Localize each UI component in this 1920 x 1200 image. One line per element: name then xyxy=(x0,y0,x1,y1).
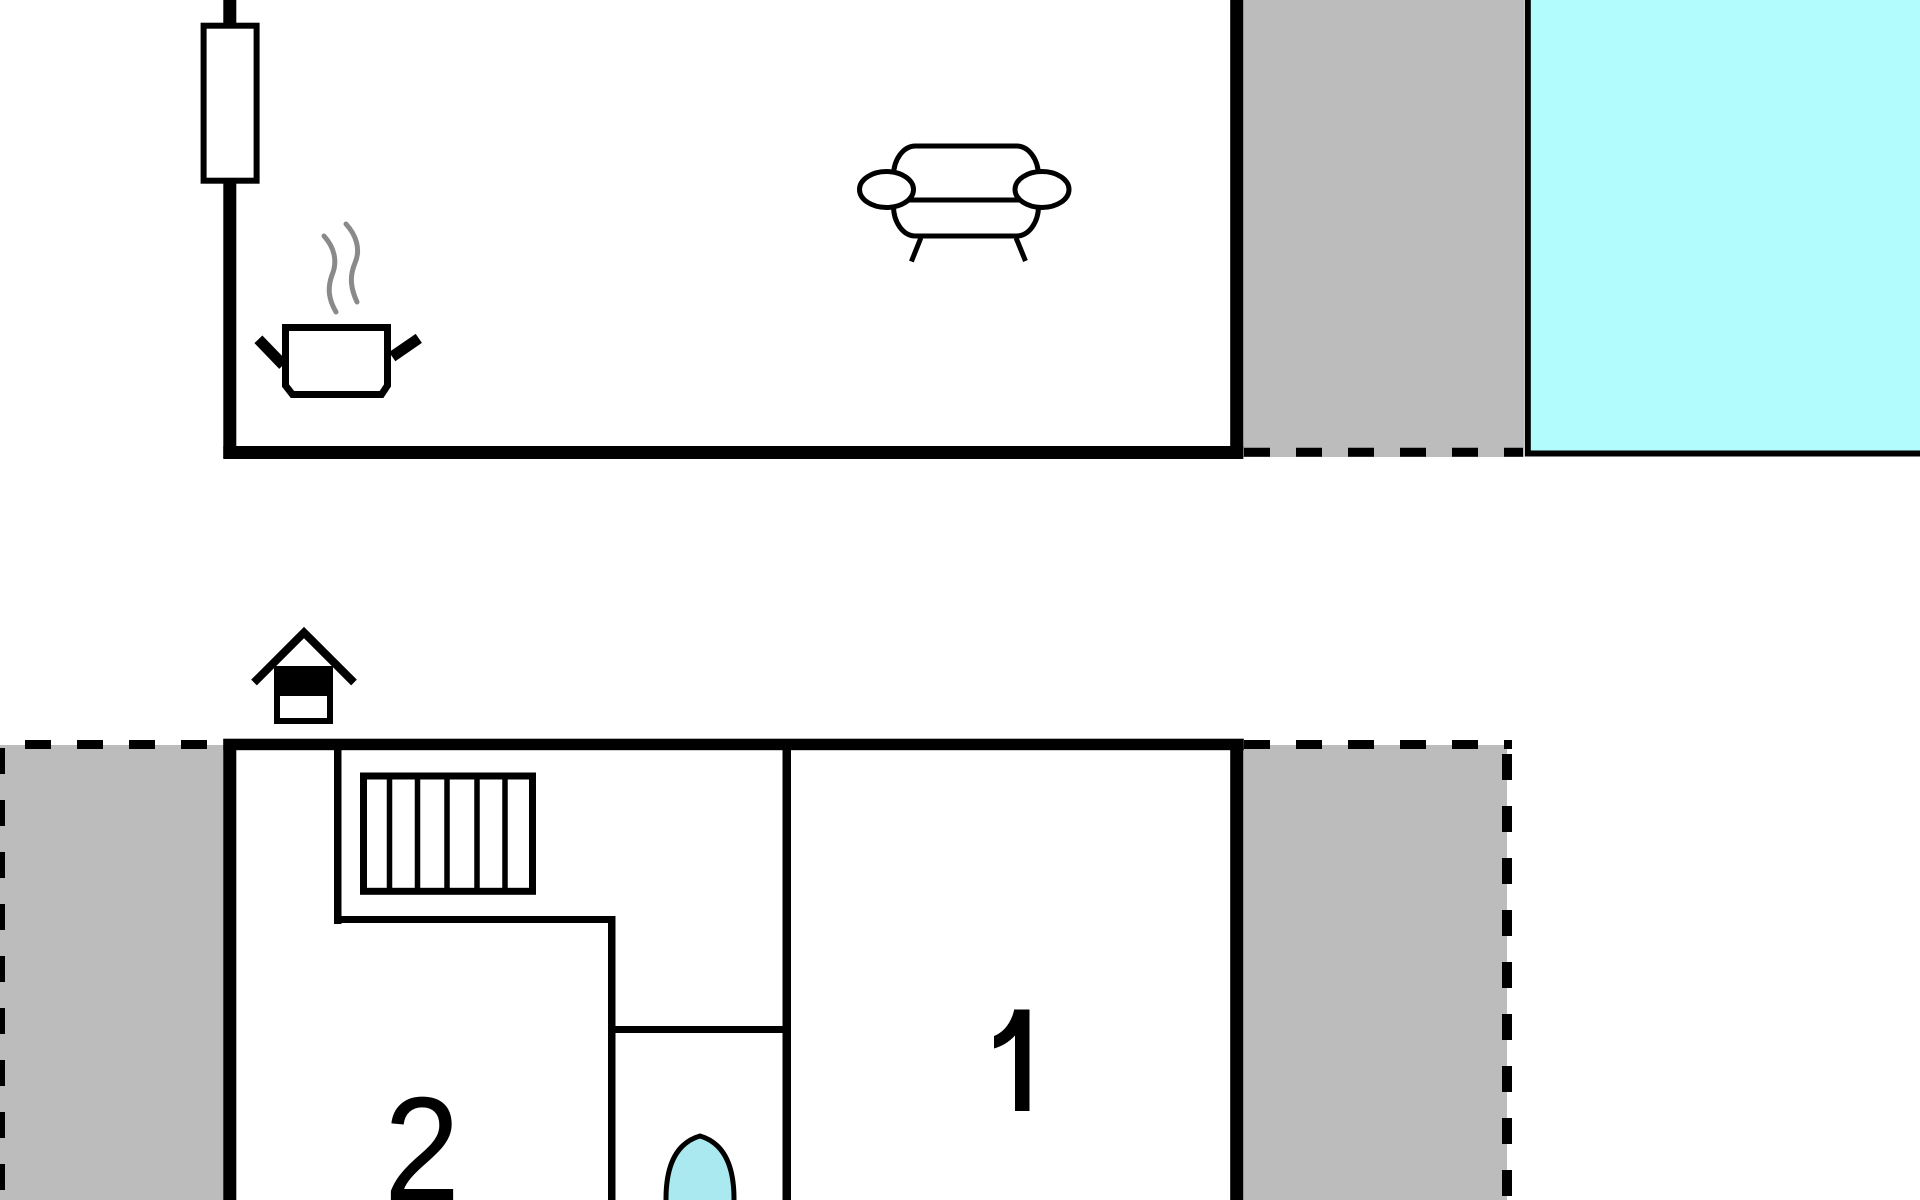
svg-text:2: 2 xyxy=(384,1067,460,1200)
